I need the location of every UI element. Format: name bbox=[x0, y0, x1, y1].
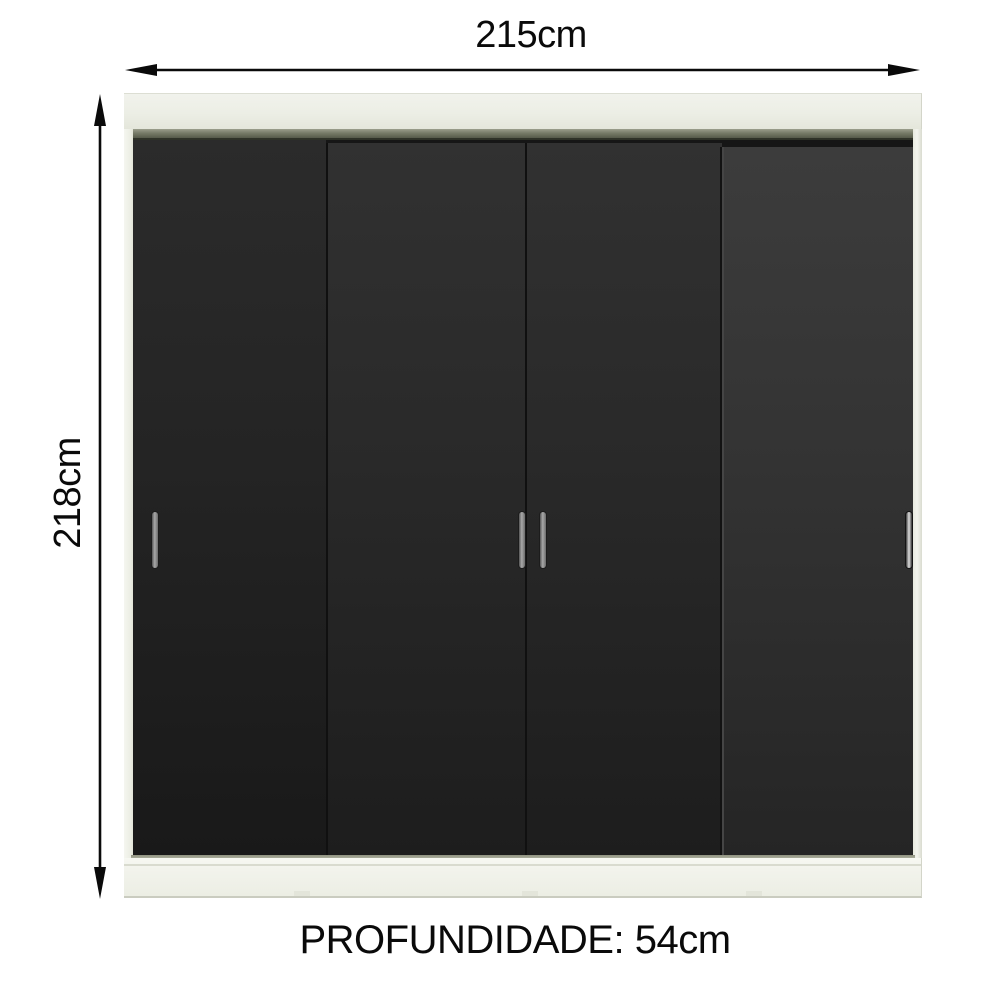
door-handle-3 bbox=[540, 512, 546, 568]
product-dimension-diagram: 215cm 218cm bbox=[0, 0, 1000, 1000]
wardrobe-right-frame bbox=[913, 129, 922, 898]
depth-dimension-label: PROFUNDIDADE: 54cm bbox=[215, 918, 815, 963]
width-dimension-arrow bbox=[124, 62, 921, 78]
sliding-track bbox=[131, 129, 915, 140]
height-dimension-arrow bbox=[92, 93, 108, 900]
wardrobe-door-3 bbox=[525, 143, 722, 855]
arrowhead-down-icon bbox=[94, 867, 106, 899]
arrowhead-right-icon bbox=[888, 64, 920, 76]
wardrobe-body bbox=[124, 93, 922, 898]
wardrobe-door-4 bbox=[722, 147, 913, 855]
base-foot bbox=[746, 891, 762, 896]
door-handle-2 bbox=[519, 512, 525, 568]
door-handle-1 bbox=[152, 512, 158, 568]
wardrobe-door-1 bbox=[133, 140, 326, 855]
base-foot bbox=[522, 891, 538, 896]
wardrobe-left-frame bbox=[124, 129, 133, 898]
arrowhead-up-icon bbox=[94, 94, 106, 126]
wardrobe-base bbox=[124, 858, 922, 898]
base-foot bbox=[294, 891, 310, 896]
wardrobe-top-panel bbox=[124, 93, 922, 129]
arrowhead-left-icon bbox=[125, 64, 157, 76]
height-dimension-label: 218cm bbox=[43, 393, 93, 593]
base-groove-line bbox=[124, 864, 921, 866]
width-dimension-label: 215cm bbox=[331, 14, 731, 57]
doors-region bbox=[133, 140, 913, 855]
door-handle-4 bbox=[906, 512, 912, 568]
wardrobe-door-2 bbox=[326, 143, 525, 855]
